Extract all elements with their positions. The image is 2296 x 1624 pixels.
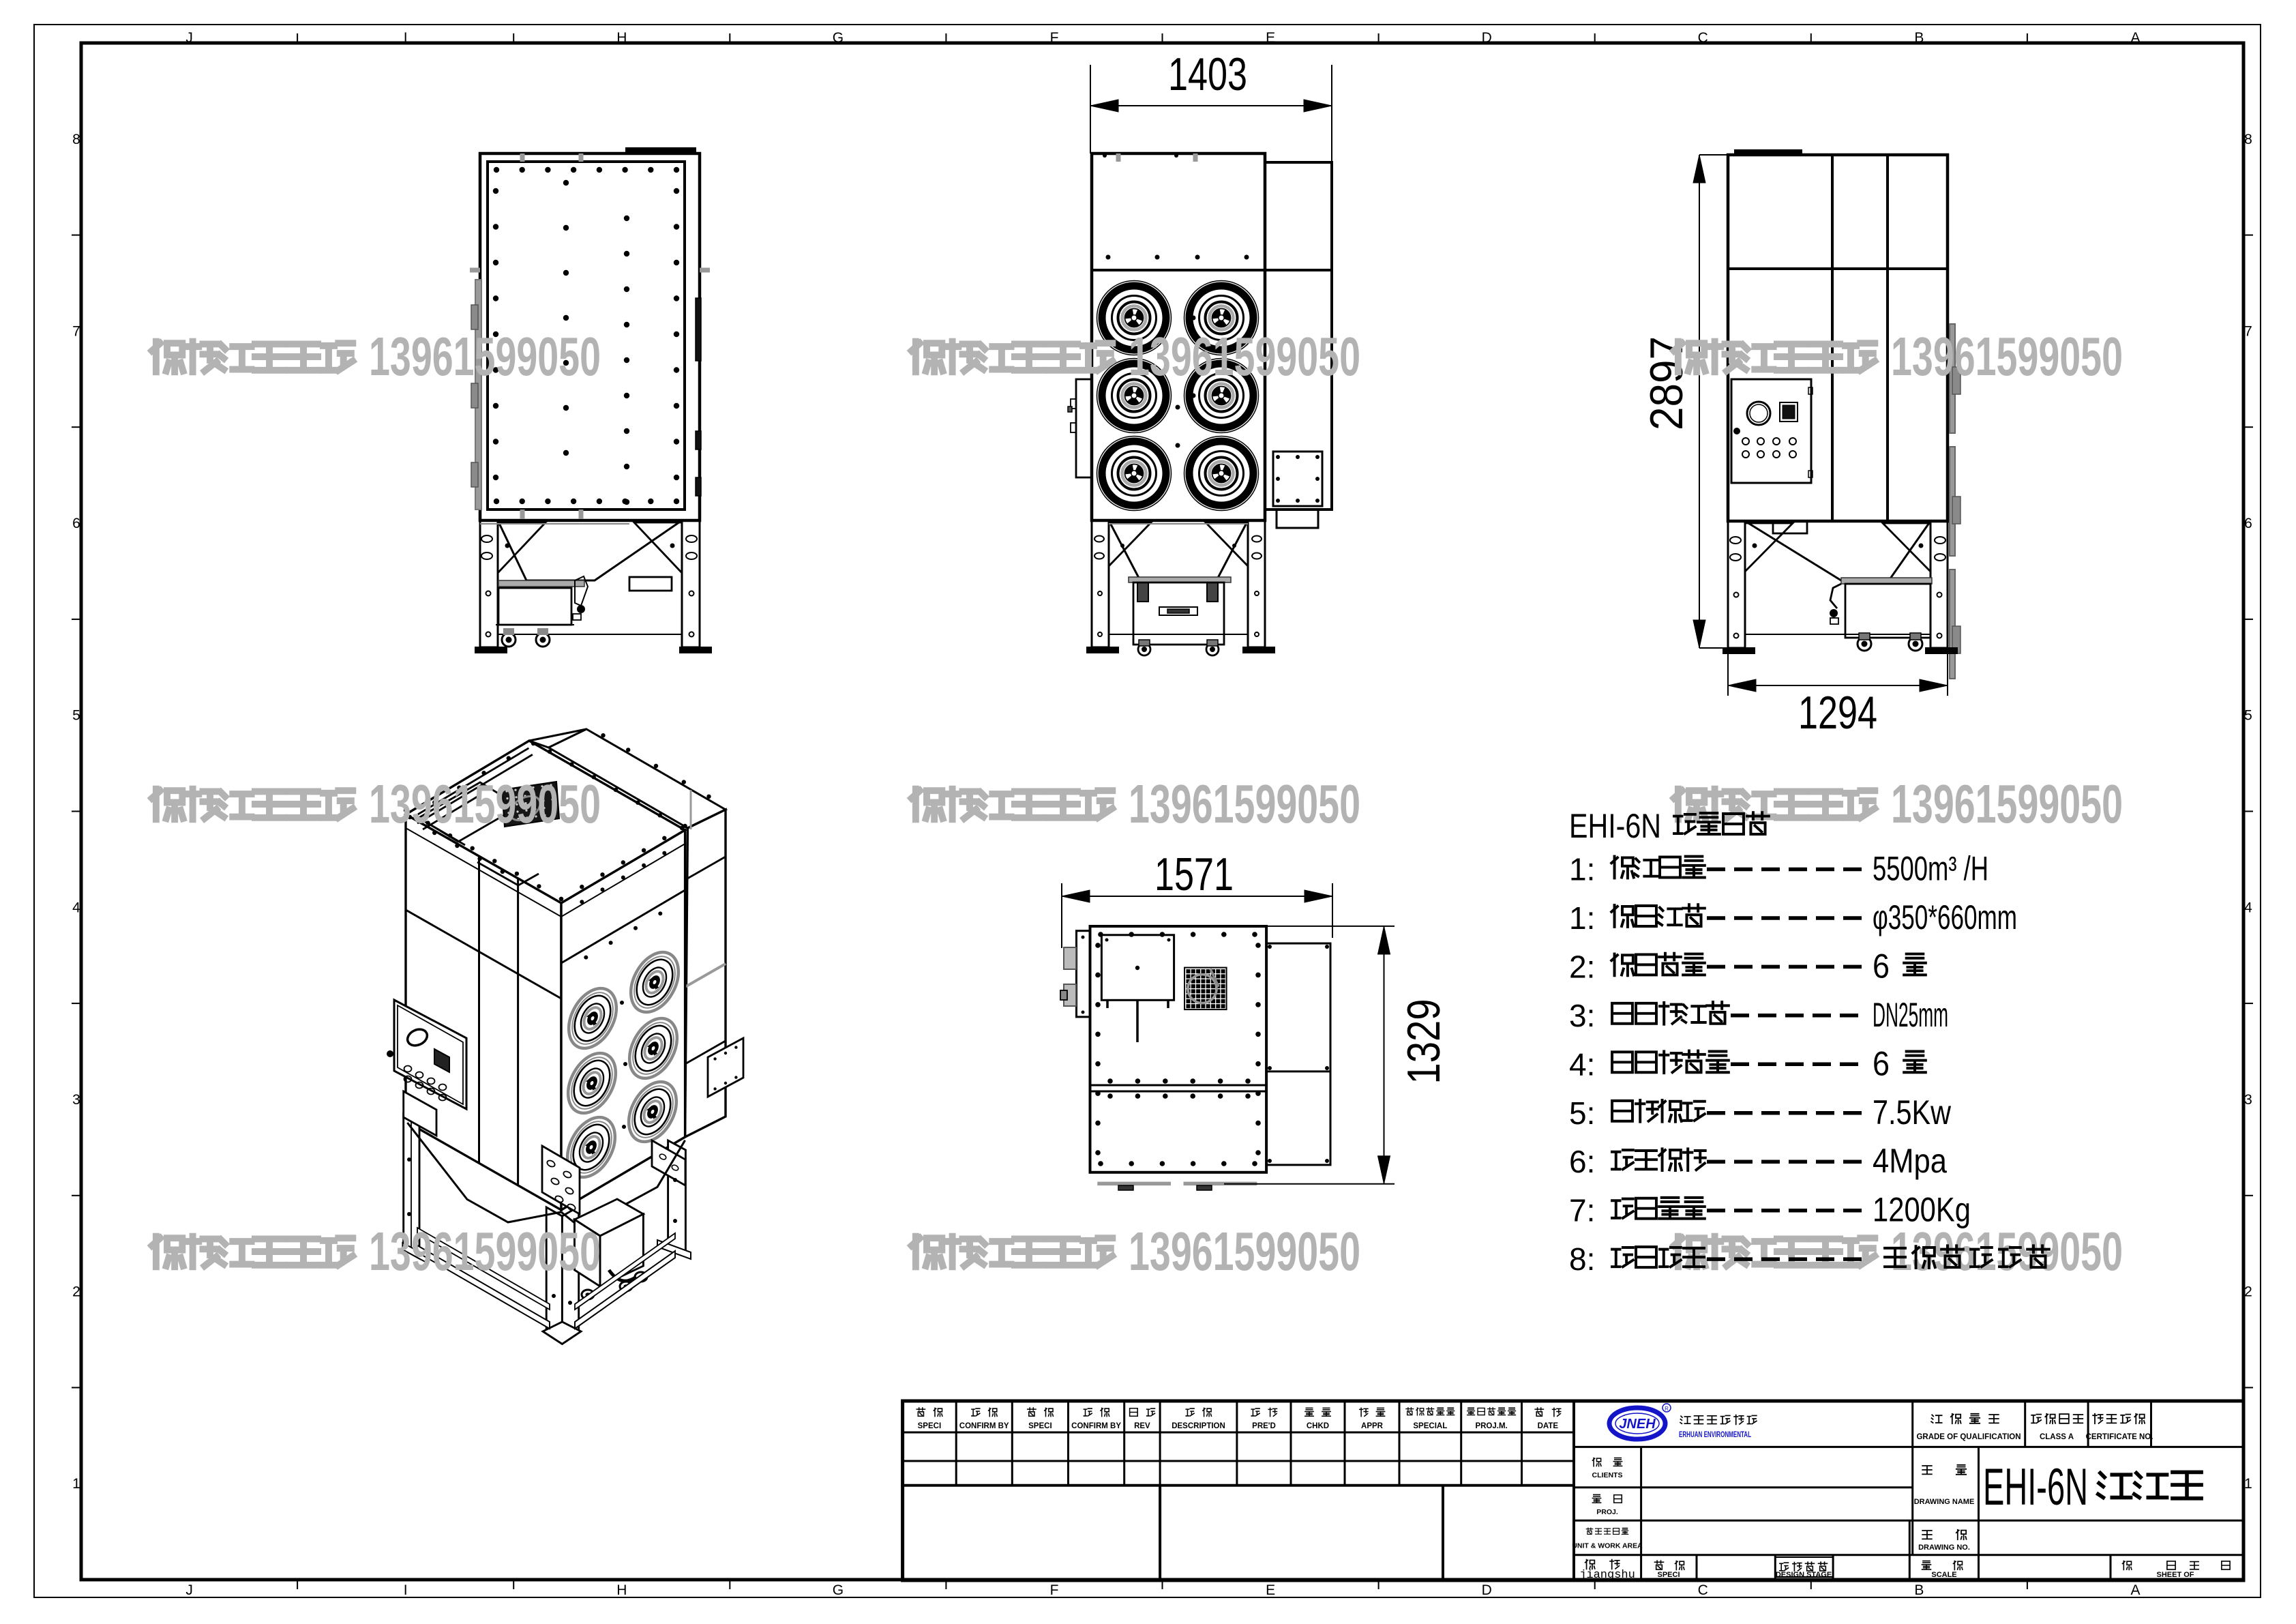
svg-text:1:: 1:: [1569, 852, 1595, 887]
svg-text:4Mpa: 4Mpa: [1873, 1142, 1947, 1180]
svg-text:B: B: [1914, 30, 1924, 46]
svg-text:DRAWING NAME: DRAWING NAME: [1914, 1498, 1975, 1506]
svg-text:DATE: DATE: [1538, 1422, 1559, 1430]
svg-text:PROJ.M.: PROJ.M.: [1475, 1422, 1507, 1430]
svg-text:CHKD: CHKD: [1307, 1422, 1329, 1430]
svg-text:5:: 5:: [1569, 1095, 1595, 1131]
svg-text:jiangshu: jiangshu: [1579, 1569, 1635, 1582]
svg-text:3: 3: [2244, 1092, 2252, 1108]
svg-text:C: C: [1698, 30, 1708, 46]
svg-text:5: 5: [2244, 708, 2252, 724]
svg-text:PRE'D: PRE'D: [1252, 1422, 1276, 1430]
svg-text:4: 4: [72, 900, 80, 915]
svg-text:H: H: [616, 30, 627, 46]
svg-text:E: E: [1266, 1582, 1275, 1598]
svg-text:13961599050: 13961599050: [1891, 1221, 2123, 1282]
svg-text:13961599050: 13961599050: [369, 773, 601, 834]
svg-text:4:: 4:: [1569, 1046, 1595, 1082]
svg-text:4: 4: [2244, 900, 2252, 915]
svg-text:H: H: [616, 1582, 627, 1598]
svg-text:6: 6: [1873, 1044, 1890, 1082]
svg-text:F: F: [1050, 1582, 1059, 1598]
svg-text:J: J: [185, 30, 193, 46]
svg-text:SPECI: SPECI: [1028, 1422, 1052, 1430]
svg-text:8: 8: [2244, 132, 2252, 147]
svg-text:φ350*660mm: φ350*660mm: [1873, 898, 2017, 936]
svg-text:E: E: [1266, 30, 1275, 46]
svg-text:8: 8: [72, 132, 80, 147]
svg-text:EHI-6N: EHI-6N: [1569, 807, 1661, 845]
svg-text:CONFIRM BY: CONFIRM BY: [959, 1422, 1009, 1430]
svg-text:1294: 1294: [1798, 687, 1877, 739]
svg-text:7: 7: [2244, 323, 2252, 339]
svg-text:13961599050: 13961599050: [1891, 773, 2123, 834]
svg-text:D: D: [1482, 30, 1492, 46]
svg-text:13961599050: 13961599050: [369, 1221, 601, 1282]
svg-text:3:: 3:: [1569, 998, 1595, 1033]
svg-text:G: G: [833, 30, 844, 46]
svg-text:DRAWING NO.: DRAWING NO.: [1918, 1544, 1970, 1552]
svg-text:R: R: [1665, 1406, 1669, 1412]
svg-text:13961599050: 13961599050: [1891, 326, 2123, 387]
svg-text:6: 6: [2244, 516, 2252, 531]
svg-text:A: A: [2130, 1582, 2140, 1598]
svg-text:2:: 2:: [1569, 949, 1595, 984]
svg-text:REV: REV: [1134, 1422, 1150, 1430]
svg-text:PROJ.: PROJ.: [1596, 1508, 1618, 1516]
svg-text:D: D: [1482, 1582, 1492, 1598]
svg-text:2: 2: [2244, 1284, 2252, 1300]
svg-text:2: 2: [72, 1284, 80, 1300]
svg-text:SPECIAL: SPECIAL: [1413, 1422, 1447, 1430]
svg-text:APPR: APPR: [1361, 1422, 1384, 1430]
svg-text:F: F: [1050, 30, 1059, 46]
svg-text:1200Kg: 1200Kg: [1873, 1191, 1971, 1229]
svg-text:7.5Kw: 7.5Kw: [1873, 1093, 1952, 1132]
svg-text:2897: 2897: [1641, 336, 1693, 430]
svg-text:13961599050: 13961599050: [369, 326, 601, 387]
svg-text:ERHUAN ENVIRONMENTAL: ERHUAN ENVIRONMENTAL: [1679, 1430, 1751, 1439]
svg-text:CONFIRM BY: CONFIRM BY: [1071, 1422, 1121, 1430]
svg-text:1: 1: [2244, 1476, 2252, 1492]
svg-text:SPECI: SPECI: [918, 1422, 942, 1430]
svg-text:J: J: [185, 1582, 193, 1598]
svg-text:13961599050: 13961599050: [1129, 773, 1360, 834]
svg-text:G: G: [833, 1582, 844, 1598]
svg-text:1: 1: [72, 1476, 80, 1492]
svg-text:1329: 1329: [1398, 999, 1450, 1084]
svg-text:DN25mm: DN25mm: [1873, 996, 1948, 1034]
svg-text:DESCRIPTION: DESCRIPTION: [1172, 1422, 1225, 1430]
svg-text:13961599050: 13961599050: [1129, 1221, 1360, 1282]
svg-text:SCALE: SCALE: [1931, 1571, 1956, 1579]
svg-text:EHI-6N: EHI-6N: [1983, 1458, 2088, 1516]
svg-text:3: 3: [72, 1092, 80, 1108]
svg-text:UNIT & WORK AREA: UNIT & WORK AREA: [1572, 1542, 1643, 1550]
svg-text:CLIENTS: CLIENTS: [1592, 1471, 1623, 1479]
svg-text:B: B: [1914, 1582, 1924, 1598]
svg-text:7:: 7:: [1569, 1193, 1595, 1228]
svg-text:6: 6: [72, 516, 80, 531]
svg-text:DESIGN STAGE: DESIGN STAGE: [1776, 1571, 1832, 1579]
svg-text:13961599050: 13961599050: [1129, 326, 1360, 387]
svg-text:CERTIFICATE NO.: CERTIFICATE NO.: [2086, 1433, 2153, 1441]
svg-text:1403: 1403: [1168, 48, 1247, 100]
svg-text:6:: 6:: [1569, 1144, 1595, 1179]
svg-text:6: 6: [1873, 947, 1890, 985]
svg-text:1571: 1571: [1154, 848, 1234, 900]
svg-text:7: 7: [72, 323, 80, 339]
svg-text:C: C: [1698, 1582, 1708, 1598]
svg-text:I: I: [404, 1582, 408, 1598]
svg-text:SPECI: SPECI: [1657, 1571, 1680, 1579]
svg-text:8:: 8:: [1569, 1241, 1595, 1277]
svg-text:5: 5: [72, 708, 80, 724]
svg-text:A: A: [2130, 30, 2140, 46]
svg-text:JNEH: JNEH: [1619, 1417, 1656, 1432]
svg-text:5500m³ /H: 5500m³ /H: [1873, 850, 1988, 888]
svg-text:CLASS A: CLASS A: [2040, 1433, 2074, 1441]
svg-text:1:: 1:: [1569, 900, 1595, 936]
svg-text:GRADE OF QUALIFICATION: GRADE OF QUALIFICATION: [1916, 1433, 2021, 1441]
svg-text:I: I: [404, 30, 408, 46]
svg-text:SHEET OF: SHEET OF: [2156, 1571, 2194, 1579]
